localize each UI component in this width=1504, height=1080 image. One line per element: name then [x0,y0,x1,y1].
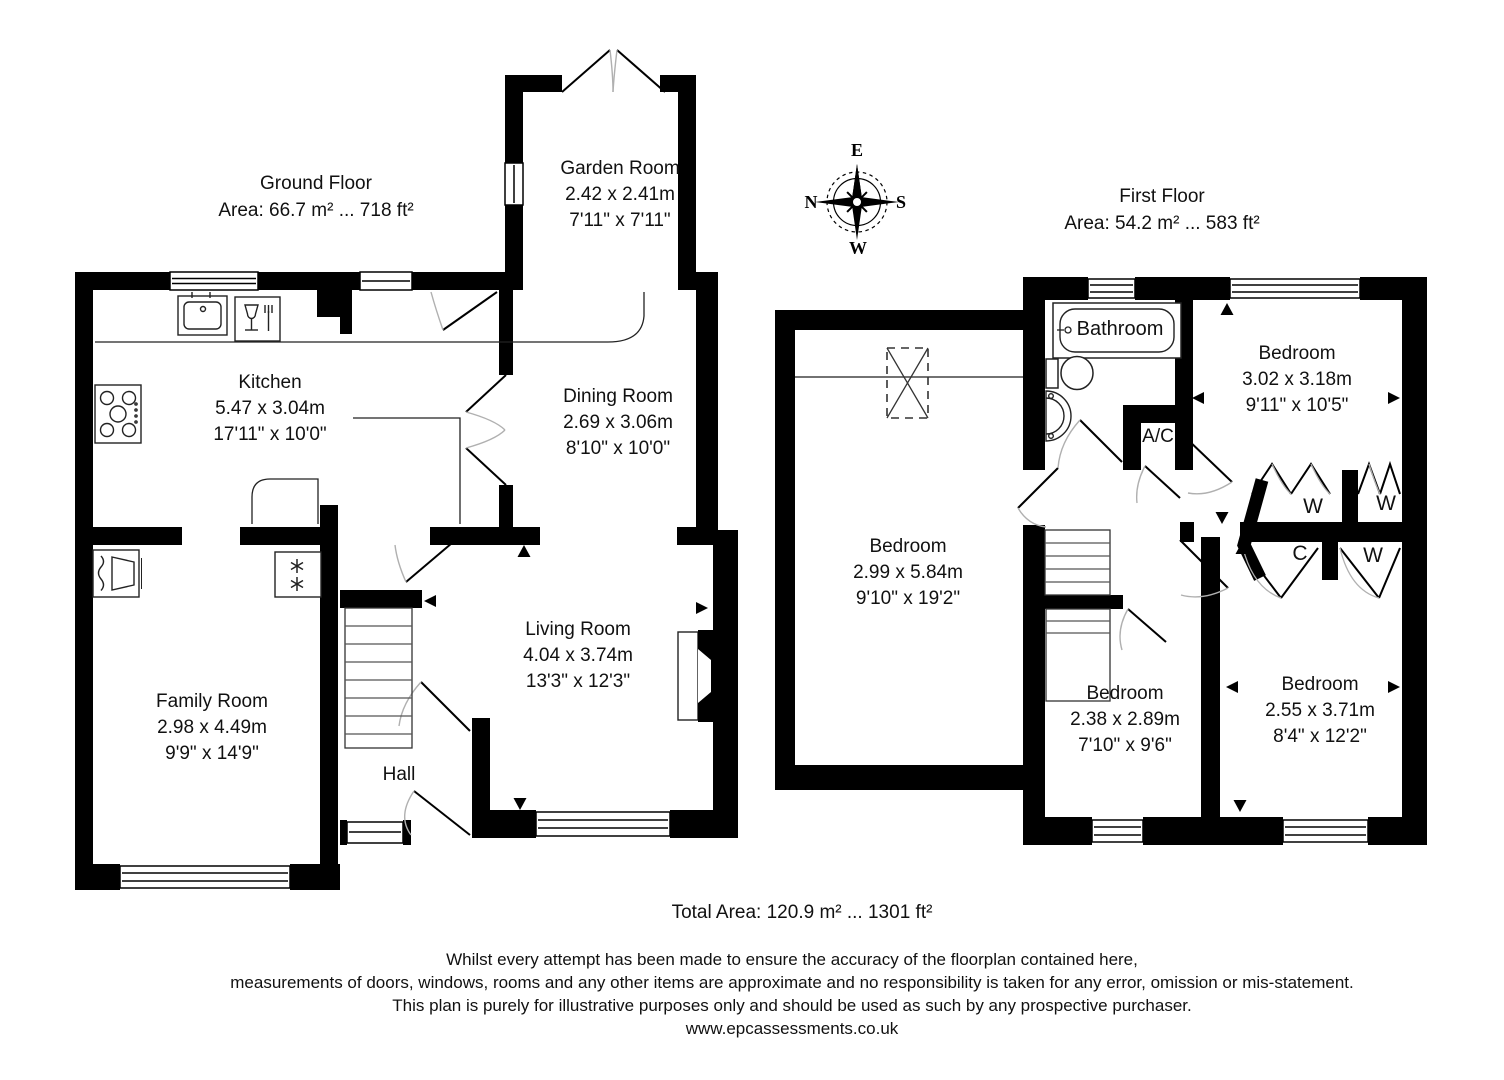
room-label-garden-room: Garden Room 2.42 x 2.41m 7'11" x 7'11" [560,156,679,234]
disclaimer-line-2: measurements of doors, windows, rooms an… [230,971,1353,994]
room-label-hall: Hall [383,762,416,788]
room-label-family-room: Family Room 2.98 x 4.49m 9'9" x 14'9" [156,689,268,767]
door-leaf [421,682,470,731]
window [1092,820,1143,842]
room-label-bathroom: Bathroom [1077,316,1164,342]
door-arc [466,412,505,430]
living-room-fireplace [678,630,715,722]
freezer-icon [275,552,321,597]
room-label-living-room: Living Room 4.04 x 3.74m 13'3" x 12'3" [523,617,633,695]
marker-left [424,595,436,607]
door-arc [1137,466,1145,503]
door-leaf [466,448,506,485]
door-leaf [1018,468,1058,508]
marker-left [1226,681,1238,693]
door-arc [1120,609,1128,650]
marker-down [1216,512,1229,524]
room-label-bedroom-bottom-right: Bedroom 2.55 x 3.71m 8'4" x 12'2" [1265,672,1375,750]
compass-west-label: W [849,238,867,258]
window [1230,279,1360,298]
marker-down [1234,800,1247,812]
door-arc [1188,482,1232,494]
french-door-leaf [617,50,665,92]
hob-icon [95,385,141,443]
marker-right [1388,681,1400,693]
toilet-icon [1046,357,1093,390]
door-leaf [466,375,506,412]
room-label-dining-room: Dining Room 2.69 x 3.06m 8'10" x 10'0" [563,384,673,462]
first-floor-header: First Floor Area: 54.2 m² ... 583 ft² [1064,183,1259,237]
window [170,272,258,290]
room-label-ac: A/C [1142,424,1174,450]
marker-up [1221,303,1234,315]
door-arc [399,682,421,726]
room-label-bedroom-left: Bedroom 2.99 x 5.84m 9'10" x 19'2" [853,534,963,612]
website-text: www.epcassessments.co.uk [686,1017,899,1040]
door-arc [466,430,505,448]
disclaimer-line-3: This plan is purely for illustrative pur… [392,994,1191,1017]
door-leaf [1128,609,1166,642]
marker-right [1388,392,1400,404]
closet-label-c: C [1292,543,1307,565]
closet-label-w1: W [1303,496,1323,518]
disclaimer-line-1: Whilst every attempt has been made to en… [446,948,1138,971]
door-arc [431,292,443,330]
marker-up [518,545,531,557]
door-leaf [406,543,452,582]
door-leaf [443,292,497,330]
floorplan-page: E N S W Ground Floor Area: 66.7 m² ... 7… [0,0,1504,1080]
window [1283,820,1368,842]
compass-south-label: S [896,192,906,212]
door-arc [613,50,617,92]
room-label-kitchen: Kitchen 5.47 x 3.04m 17'11" x 10'0" [213,370,326,448]
window [120,866,290,888]
first-floor-title: First Floor [1064,183,1259,210]
loft-hatch-icon [887,348,928,418]
window [536,812,670,836]
closet-label-w3: W [1363,545,1383,567]
ground-floor-title: Ground Floor [218,170,413,197]
chimney-stub [317,290,352,334]
ff-stairs [1045,530,1110,701]
fireplace-icon [93,550,142,597]
first-floor-area: Area: 54.2 m² ... 583 ft² [1064,210,1259,237]
window [1088,279,1135,298]
door-arc [395,545,406,582]
ground-floor-header: Ground Floor Area: 66.7 m² ... 718 ft² [218,170,413,224]
marker-down [514,798,527,810]
compass-icon: E N S W [805,140,907,258]
door-leaf [1080,420,1122,462]
closet-label-w2: W [1376,493,1396,515]
door-arc [1018,508,1046,527]
marker-right [696,602,708,614]
french-door-leaf [562,50,610,92]
total-area-text: Total Area: 120.9 m² ... 1301 ft² [672,900,933,926]
ground-floor-area: Area: 66.7 m² ... 718 ft² [218,197,413,224]
gf-stairs [345,608,412,748]
room-label-bedroom-bottom-middle: Bedroom 2.38 x 2.89m 7'10" x 9'6" [1070,681,1180,759]
marker-left [1192,392,1204,404]
compass-north-label: N [805,192,818,212]
door-arc [610,50,613,92]
room-label-bedroom-top-right: Bedroom 3.02 x 3.18m 9'11" x 10'5" [1242,341,1352,419]
dishwasher-icon [235,297,280,341]
front-door-leaf [414,791,470,835]
compass-east-label: E [851,140,863,160]
basin-icon [1046,391,1071,441]
sink-icon [178,292,227,335]
door-leaf [1145,466,1180,498]
bifold-door [1358,464,1400,494]
